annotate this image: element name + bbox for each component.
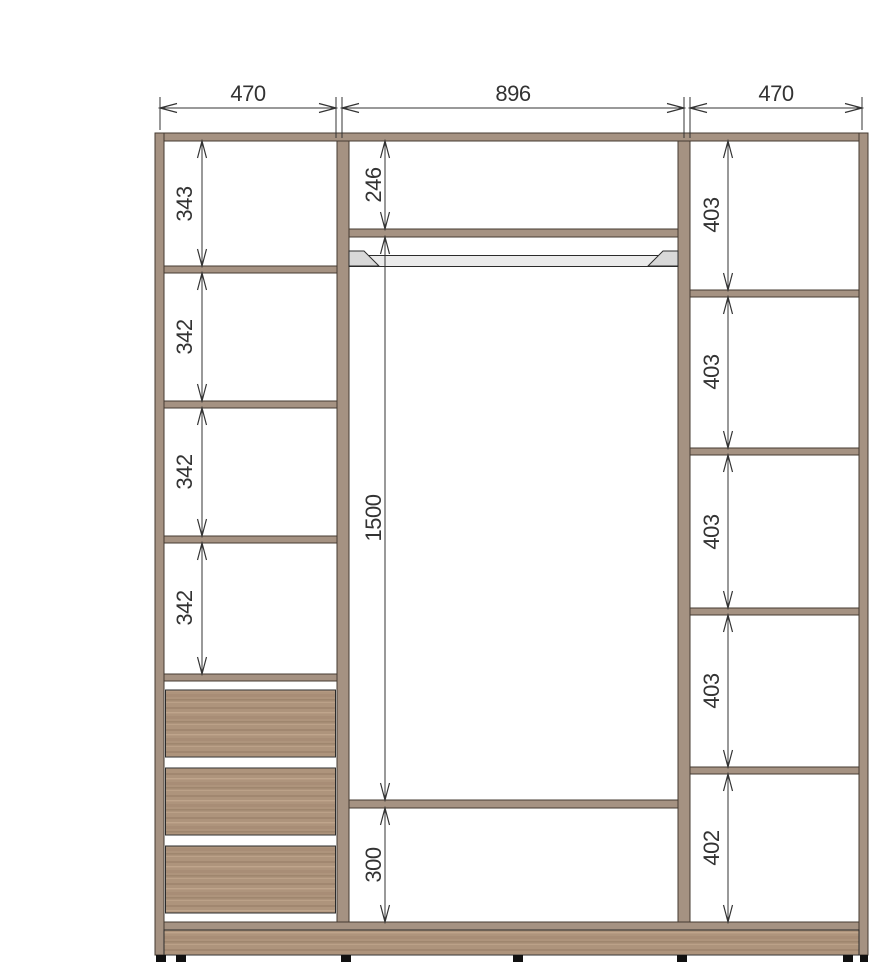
dim-label-left-section-3: 342: [172, 454, 197, 489]
foot: [341, 955, 351, 962]
partition-right: [678, 141, 690, 930]
foot: [860, 955, 868, 962]
dim-label-middle-width: 896: [495, 81, 530, 106]
top-panel: [155, 133, 868, 141]
left-shelf-2: [164, 401, 337, 408]
foot: [843, 955, 853, 962]
left-shelf-1: [164, 266, 337, 273]
dim-label-left-section-2: 342: [172, 319, 197, 354]
plinth: [164, 930, 859, 955]
dim-label-right-section-4: 403: [699, 673, 724, 708]
foot: [513, 955, 523, 962]
left-side-panel: [155, 133, 164, 955]
drawing-svg: 470 896 470 343 342 342 342 246 1500 300…: [0, 0, 880, 971]
dim-label-left-width: 470: [230, 81, 265, 106]
drawer-front-1: [166, 690, 336, 757]
middle-column: [349, 229, 678, 808]
bottom-panel: [164, 922, 859, 930]
drawer-front-3: [166, 846, 336, 913]
dim-label-right-width: 470: [758, 81, 793, 106]
dim-label-middle-section-1: 246: [361, 167, 386, 202]
right-shelf-4: [690, 767, 859, 774]
dim-label-left-section-4: 342: [172, 590, 197, 625]
drawer-front-2: [166, 768, 336, 835]
right-shelf-3: [690, 608, 859, 615]
foot: [677, 955, 687, 962]
middle-top-shelf: [349, 229, 678, 237]
wardrobe-dimension-drawing: 470 896 470 343 342 342 342 246 1500 300…: [0, 0, 880, 971]
dim-label-right-section-2: 403: [699, 354, 724, 389]
dim-right-sections: 403 403 403 403 402: [699, 141, 728, 922]
dim-top-widths: 470 896 470: [160, 81, 862, 138]
foot: [176, 955, 186, 962]
dim-label-right-section-3: 403: [699, 514, 724, 549]
left-shelf-3: [164, 536, 337, 543]
foot: [156, 955, 166, 962]
drawer-stack: [166, 690, 336, 913]
dim-label-middle-section-3: 300: [361, 847, 386, 882]
dim-label-left-section-1: 343: [172, 186, 197, 221]
feet: [156, 955, 868, 962]
right-shelf-2: [690, 448, 859, 455]
dim-label-middle-section-2: 1500: [361, 494, 386, 541]
left-shelf-4: [164, 674, 337, 681]
partition-left: [337, 141, 349, 930]
right-shelf-1: [690, 290, 859, 297]
hanging-rod: [349, 256, 678, 267]
dim-label-right-section-1: 403: [699, 197, 724, 232]
middle-bottom-shelf: [349, 800, 678, 808]
right-side-panel: [859, 133, 868, 955]
dim-label-right-section-5: 402: [699, 830, 724, 865]
